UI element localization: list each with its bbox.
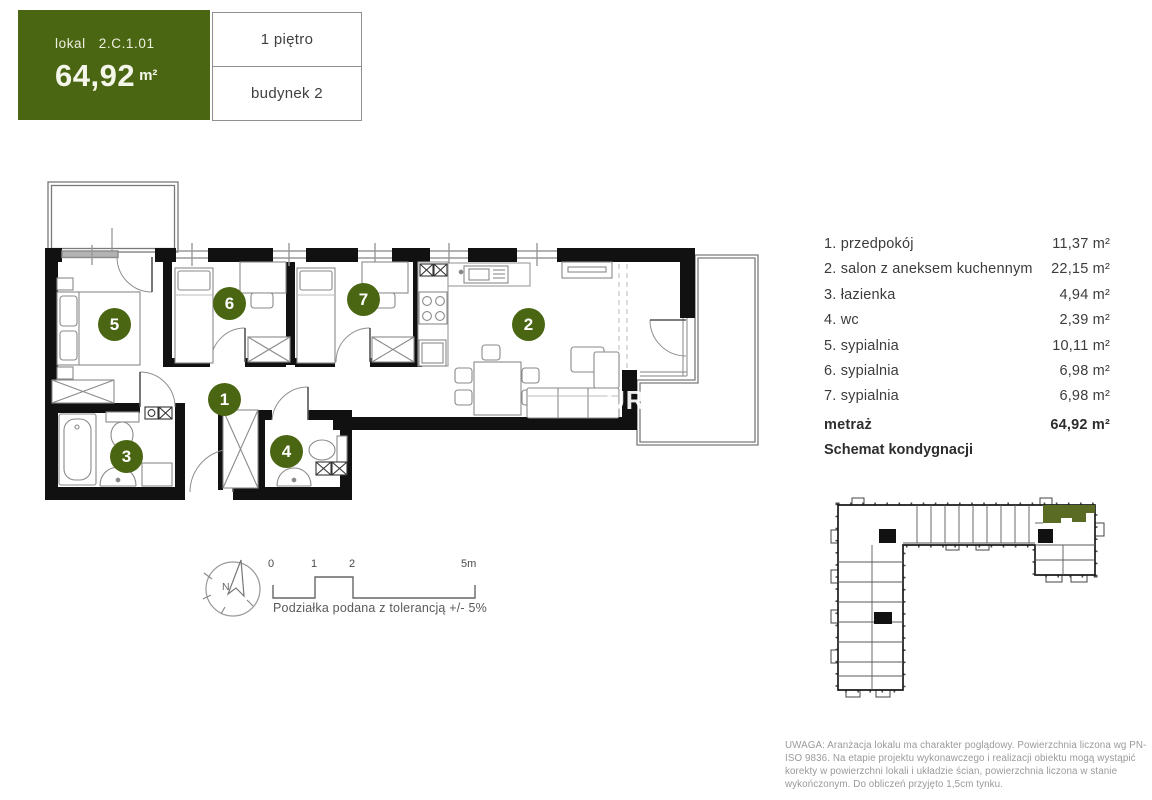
building-schematic [828,492,1128,707]
glass-corner-frame [640,318,687,376]
building-label: budynek 2 [251,85,323,102]
unit-id-line: lokal2.C.1.01 [55,36,210,51]
wardrobe-icon [223,410,258,488]
unit-area-line: 64,92m² [55,58,210,94]
scale-caption: Podziałka podana z tolerancją +/- 5% [273,601,487,615]
legend-row: 5. sypialnia10,11 m² [824,334,1110,359]
legend-row: 6. sypialnia6,98 m² [824,359,1110,384]
disclaimer-text: UWAGA: Aranżacja lokalu ma charakter pog… [785,739,1152,792]
room-legend: 1. przedpokój11,37 m² 2. salon z aneksem… [824,232,1110,463]
unit-number: 2.C.1.01 [99,36,155,51]
unit-header-card: lokal2.C.1.01 64,92m² [18,10,210,120]
scale-tick-5m: 5m [461,558,476,570]
unit-area-unit: m² [139,67,157,84]
legend-total-row: metraż64,92 m² [824,413,1110,438]
legend-row: 2. salon z aneksem kuchennym22,15 m² [824,257,1110,282]
unit-area-value: 64,92 [55,58,135,93]
building-box: budynek 2 [212,66,362,121]
compass-north-label: N [222,581,230,593]
wardrobe-icon [372,337,414,362]
room-number-badge: 2 [512,308,545,341]
room-number-badge: 1 [208,383,241,416]
room-number-badge: 6 [213,287,246,320]
room-number-badge: 5 [98,308,131,341]
legend-row: 7. sypialnia6,98 m² [824,384,1110,409]
balcony-right [637,255,758,445]
room-number-badge: 7 [347,283,380,316]
scale-tick-2: 2 [349,558,355,570]
floor-label: 1 piętro [261,31,313,48]
watermark: UR [606,385,646,416]
scale-tick-0: 0 [268,558,274,570]
wardrobe-icon [52,380,114,403]
lokal-label: lokal [55,36,86,51]
legend-row: 4. wc2,39 m² [824,308,1110,333]
balcony-top-left [48,182,178,252]
floorplan-page: lokal2.C.1.01 64,92m² 1 piętro budynek 2 [0,0,1152,800]
wardrobe-icon [248,337,290,362]
scale-bar [265,572,485,604]
floor-box: 1 piętro [212,12,362,67]
room-number-badge: 3 [110,440,143,473]
legend-row: 1. przedpokój11,37 m² [824,232,1110,257]
floor-plan [35,165,770,515]
compass-icon [200,555,270,625]
scale-tick-1: 1 [311,558,317,570]
room-number-badge: 4 [270,435,303,468]
schematic-heading: Schemat kondygnacji [824,438,1110,463]
legend-row: 3. łazienka4,94 m² [824,283,1110,308]
